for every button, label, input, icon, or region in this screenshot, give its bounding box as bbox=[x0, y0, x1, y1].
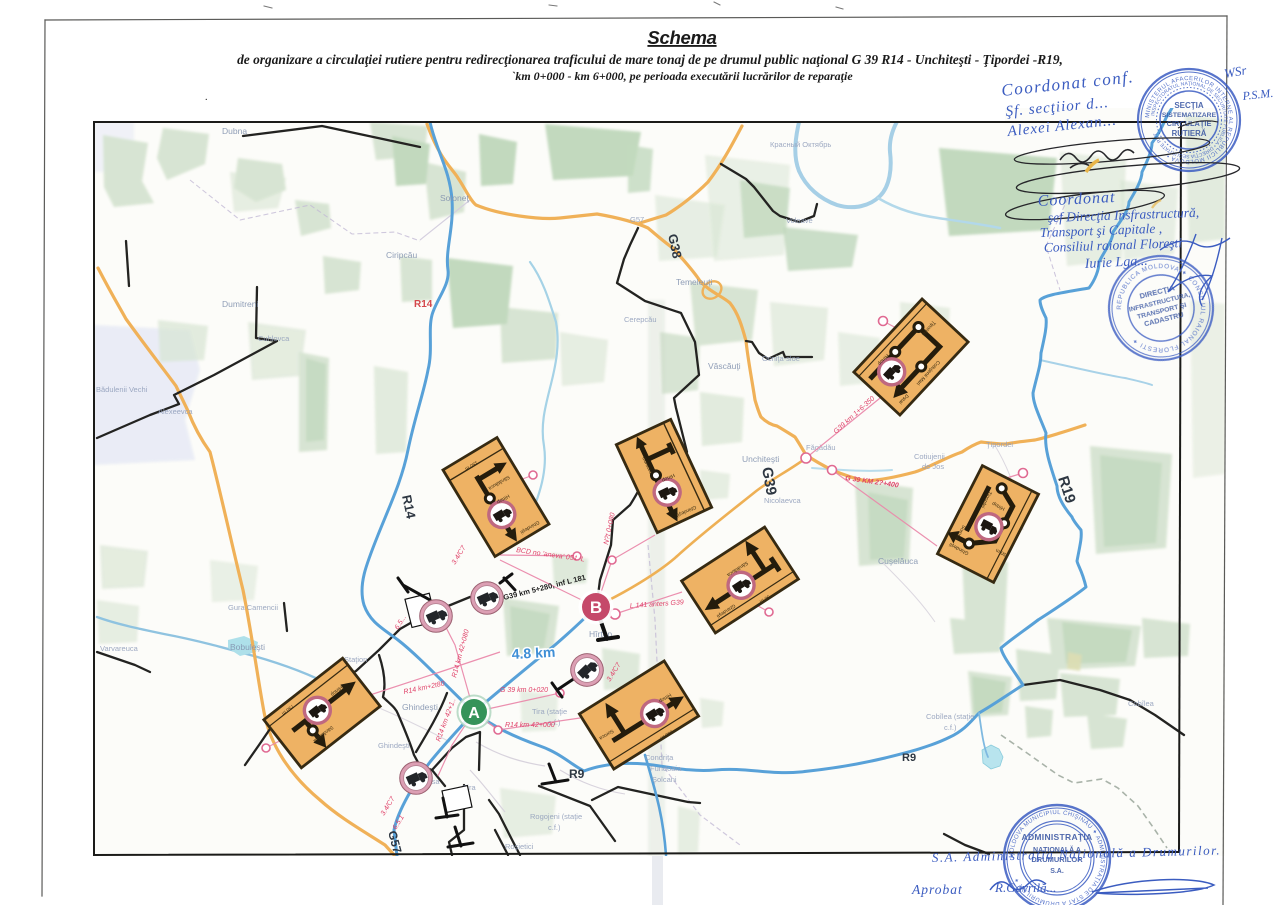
svg-text:Nicolaevca: Nicolaevca bbox=[764, 496, 802, 505]
svg-text:R14 km 42+000: R14 km 42+000 bbox=[505, 722, 555, 729]
svg-text:Ghindeşti: Ghindeşti bbox=[378, 741, 410, 750]
svg-text:Cotiujenii: Cotiujenii bbox=[914, 452, 945, 461]
svg-text:R14: R14 bbox=[414, 299, 433, 310]
svg-text:Schema: Schema bbox=[647, 27, 716, 48]
svg-text:Roşietici: Roşietici bbox=[505, 842, 534, 851]
svg-text:Красный Октябрь: Красный Октябрь bbox=[770, 140, 831, 149]
svg-text:Bădulenii Vechi: Bădulenii Vechi bbox=[96, 385, 148, 394]
svg-text:Ocniţa-sloe: Ocniţa-sloe bbox=[762, 354, 800, 363]
svg-text:Aprobat: Aprobat bbox=[911, 882, 963, 897]
svg-text:de organizare a circulaţiei ru: de organizare a circulaţiei rutiere pent… bbox=[237, 52, 1063, 67]
svg-text:Dumitreni: Dumitreni bbox=[222, 299, 258, 309]
svg-text:Bobuleşti: Bobuleşti bbox=[230, 642, 265, 652]
svg-text:Voloave: Voloave bbox=[786, 216, 813, 225]
svg-text:Ţipordei: Ţipordei bbox=[986, 440, 1013, 449]
svg-text:B: B bbox=[590, 598, 602, 617]
svg-text:Alexeevca: Alexeevca bbox=[158, 407, 193, 416]
svg-text:R9: R9 bbox=[902, 752, 916, 764]
svg-text:SISTEMATIZARE: SISTEMATIZARE bbox=[1162, 112, 1217, 119]
svg-text:Condriţa: Condriţa bbox=[645, 753, 674, 762]
svg-text:ADMINISTRAŢIA: ADMINISTRAŢIA bbox=[1022, 832, 1093, 842]
svg-text:WSr: WSr bbox=[1223, 62, 1249, 81]
svg-text:P.S.M.: P.S.M. bbox=[1241, 86, 1274, 103]
svg-text:Văscăuţi: Văscăuţi bbox=[708, 361, 741, 371]
svg-text:Şolcani: Şolcani bbox=[652, 775, 677, 784]
svg-text:.: . bbox=[205, 92, 208, 103]
svg-text:RUTIERĂ: RUTIERĂ bbox=[1172, 129, 1207, 138]
svg-text:Ciripcău: Ciripcău bbox=[386, 250, 417, 260]
svg-text:Soloneţ: Soloneţ bbox=[440, 193, 469, 203]
svg-text:Cerepcău: Cerepcău bbox=[624, 315, 657, 324]
svg-text:c.f.): c.f.) bbox=[944, 723, 957, 732]
svg-text:Cobîlea: Cobîlea bbox=[1128, 699, 1155, 708]
svg-text:Cuşelăuca: Cuşelăuca bbox=[878, 556, 918, 566]
svg-text:Făgădău: Făgădău bbox=[806, 443, 836, 452]
svg-text:Cuhlovca: Cuhlovca bbox=[258, 334, 290, 343]
svg-text:Varvareuca: Varvareuca bbox=[100, 644, 139, 653]
svg-text:Ghindeşti: Ghindeşti bbox=[402, 702, 438, 712]
svg-text:Cobîlea (staţie: Cobîlea (staţie bbox=[926, 712, 974, 721]
svg-text:Rogojeni (staţie: Rogojeni (staţie bbox=[530, 812, 582, 821]
svg-text:c.f.): c.f.) bbox=[548, 823, 561, 832]
svg-text:Unchiteşti: Unchiteşti bbox=[742, 454, 779, 464]
svg-text:4.8 km: 4.8 km bbox=[511, 644, 555, 662]
svg-text:de Jos: de Jos bbox=[922, 462, 944, 471]
svg-text:Tira (staţie: Tira (staţie bbox=[532, 707, 567, 716]
svg-text:G 39 km 0+020: G 39 km 0+020 bbox=[500, 687, 548, 694]
svg-text:Temeleuţi: Temeleuţi bbox=[676, 277, 712, 287]
svg-text:Gura Camencii: Gura Camencii bbox=[228, 603, 278, 612]
svg-text:R9: R9 bbox=[569, 767, 585, 781]
svg-text:`km 0+000 - km 6+000, pe perio: `km 0+000 - km 6+000, pe perioada execut… bbox=[511, 69, 853, 83]
svg-text:Fundoaia: Fundoaia bbox=[650, 764, 682, 773]
svg-text:A: A bbox=[468, 705, 480, 722]
svg-text:Coordonat conf.: Coordonat conf. bbox=[1000, 67, 1135, 100]
svg-text:SECŢIA: SECŢIA bbox=[1174, 101, 1204, 110]
svg-text:S.A.: S.A. bbox=[1050, 868, 1064, 875]
svg-text:G57: G57 bbox=[630, 215, 644, 224]
svg-text:Dubna: Dubna bbox=[222, 126, 247, 136]
